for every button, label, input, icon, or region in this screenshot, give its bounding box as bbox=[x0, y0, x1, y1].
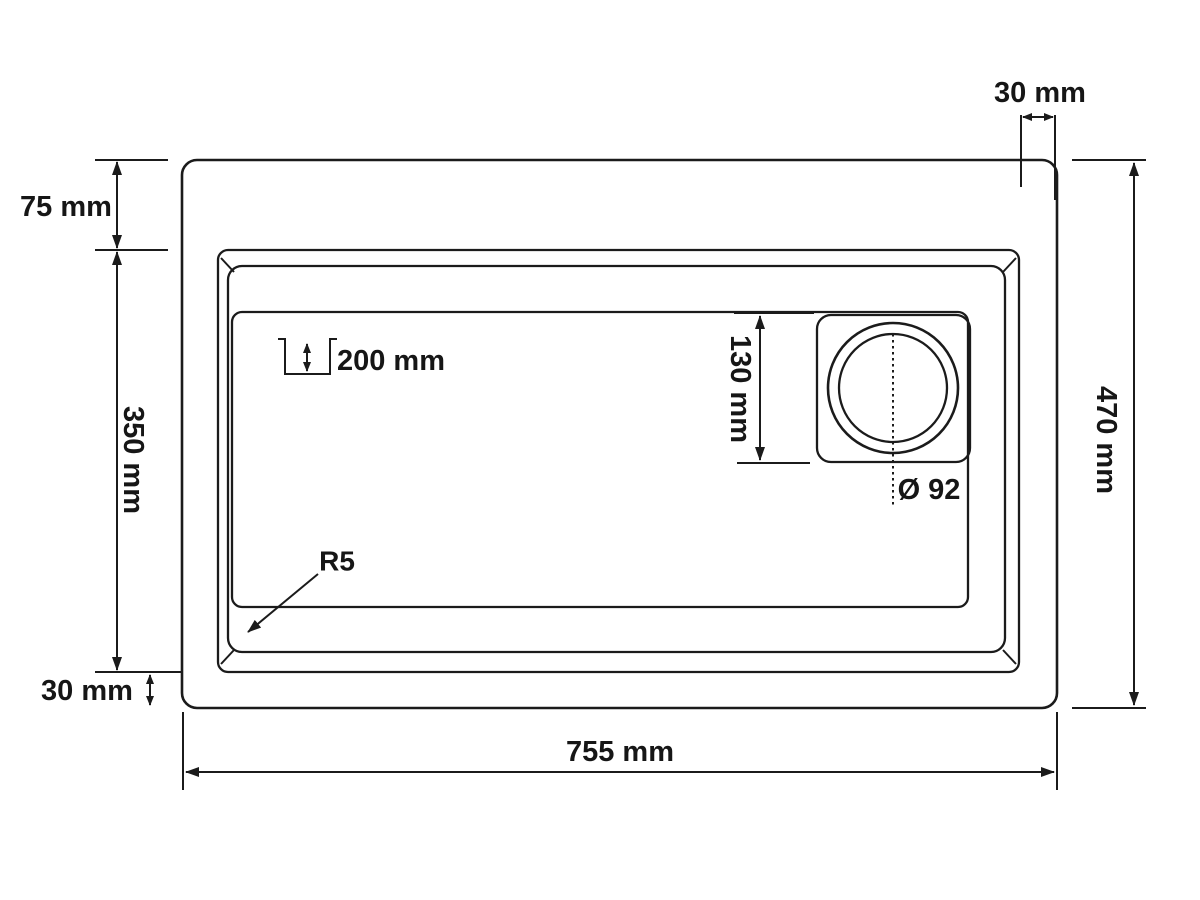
rim-chamfer-bottom-right bbox=[1003, 650, 1016, 664]
leader-line bbox=[248, 574, 318, 632]
dim-top-ledge: 75 mm bbox=[20, 160, 168, 250]
dim-label-130mm: 130 mm bbox=[724, 335, 756, 443]
dim-bottom-rim-clearance: 30 mm bbox=[41, 672, 183, 707]
rim-chamfer-top-right bbox=[1003, 258, 1016, 272]
dim-label-r5: R5 bbox=[319, 546, 355, 577]
dim-overall-width: 755 mm bbox=[183, 712, 1057, 790]
dim-label-30mm-top: 30 mm bbox=[994, 77, 1086, 109]
dim-label-75mm: 75 mm bbox=[20, 191, 112, 223]
dim-bowl-side: 350 mm bbox=[117, 252, 149, 670]
dim-overall-depth: 470 mm bbox=[1072, 160, 1146, 708]
dim-label-470mm: 470 mm bbox=[1090, 386, 1122, 494]
rim-chamfer-top-left bbox=[221, 258, 234, 272]
sink-dimension-drawing: 75 mm 350 mm 30 mm 755 mm 470 mm bbox=[0, 0, 1200, 900]
dim-label-755mm: 755 mm bbox=[566, 736, 674, 768]
sink-outline bbox=[182, 160, 1057, 708]
dim-label-30mm-bottom: 30 mm bbox=[41, 675, 133, 707]
dim-label-drain-diameter: Ø 92 bbox=[898, 474, 961, 506]
dim-label-350mm: 350 mm bbox=[117, 406, 149, 514]
dim-label-200mm: 200 mm bbox=[337, 345, 445, 377]
bowl-depth-symbol: 200 mm bbox=[278, 339, 445, 377]
dim-drain-inset: 130 mm bbox=[724, 313, 814, 463]
dim-top-rim-clearance: 30 mm bbox=[994, 77, 1086, 200]
dim-corner-radius: R5 bbox=[248, 546, 355, 633]
rim-chamfer-bottom-left bbox=[221, 650, 234, 664]
technical-drawing-canvas: 75 mm 350 mm 30 mm 755 mm 470 mm bbox=[0, 0, 1200, 900]
